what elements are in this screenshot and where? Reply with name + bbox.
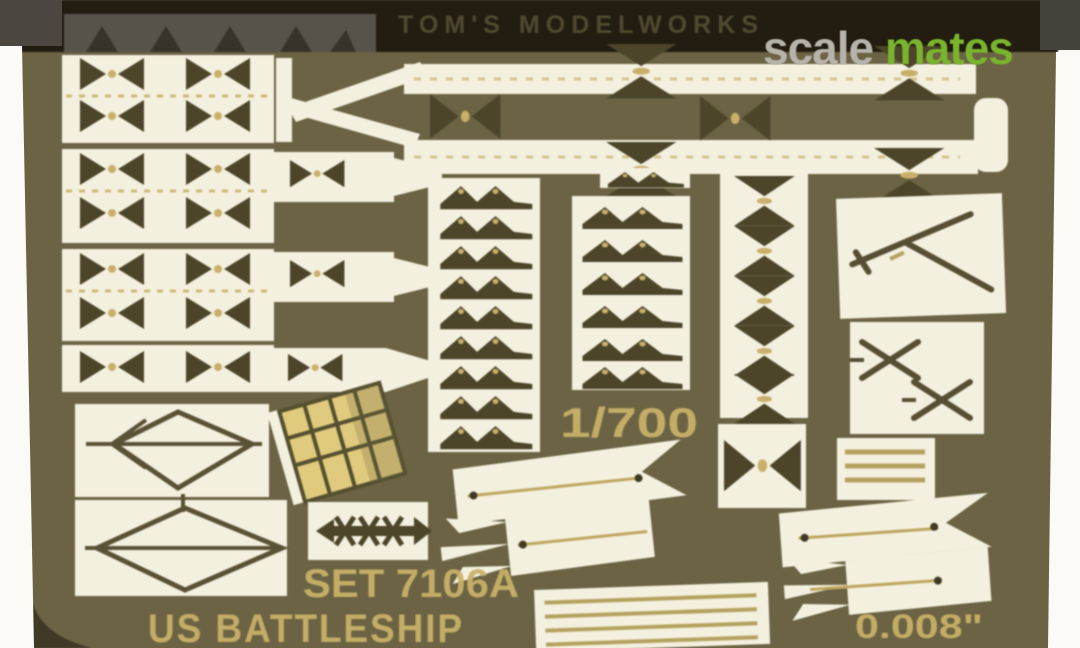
scalemates-logo-prefix: scale — [763, 22, 874, 74]
ruled-panel-large — [534, 582, 770, 648]
cross-brace-part — [850, 322, 984, 434]
cable-reel-block-2 — [62, 149, 274, 243]
chain-part — [308, 502, 432, 560]
photo-etch-fret-photo: TOM'S MODELWORKS — [0, 0, 1080, 648]
bow-frame-part — [718, 424, 806, 508]
scalemates-logo: scale mates — [763, 22, 1013, 74]
fret-photo-canvas: TOM'S MODELWORKS — [0, 0, 1080, 648]
lattice-panel-2 — [75, 494, 287, 596]
cable-reel-block-1 — [62, 55, 274, 143]
lattice-panel-1 — [75, 404, 269, 497]
scalemates-logo-suffix: mates — [885, 22, 1013, 74]
ladder-column-a — [428, 178, 540, 452]
photo-corner-top-right — [1040, 0, 1080, 50]
cable-reel-block-3 — [62, 249, 274, 341]
boat-boom-part — [836, 193, 1006, 319]
ladder-column-b — [572, 168, 690, 390]
subject-etched-text: US BATTLESHIP — [148, 607, 464, 648]
photo-corner-top-left — [0, 0, 62, 46]
ruled-panel-small — [837, 438, 935, 500]
set-number-etched-text: SET 7106A — [303, 562, 519, 606]
scale-etched-text: 1/700 — [560, 399, 698, 446]
bracket-column — [720, 172, 808, 424]
brand-etched-text: TOM'S MODELWORKS — [398, 11, 764, 39]
thickness-etched-text: 0.008" — [855, 608, 983, 646]
scalemates-logo-text: scale mates — [763, 22, 1013, 74]
